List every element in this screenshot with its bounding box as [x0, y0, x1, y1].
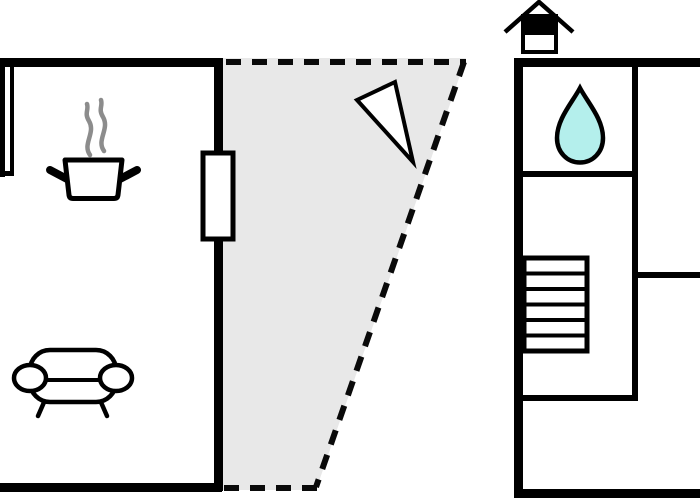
right-unit-interior-wall-vertical	[632, 64, 638, 401]
floor-plan-canvas	[0, 0, 700, 500]
terrace-shading	[222, 58, 466, 490]
left-unit-wall-bottom	[0, 483, 222, 492]
floor-plan-drawing	[0, 0, 700, 500]
pot-body	[65, 160, 122, 199]
right-unit-wall-top	[514, 58, 700, 67]
right-unit-interior-wall-right	[636, 272, 700, 278]
cooking-pot-icon	[50, 100, 137, 199]
sofa-armrest-left	[14, 365, 46, 391]
right-unit-interior-wall-upper	[520, 171, 635, 177]
left-unit-wall-right	[214, 58, 223, 491]
right-unit-wall-bottom	[514, 489, 700, 498]
left-unit-partition-horizontal	[0, 171, 14, 176]
right-unit-interior-wall-lower	[520, 395, 638, 401]
steam-line-right	[101, 100, 105, 151]
sofa-icon	[14, 350, 132, 416]
left-unit-wall-top	[0, 58, 223, 67]
sofa-armrest-right	[100, 365, 132, 391]
terrace-area	[222, 58, 466, 490]
stairs-icon	[524, 258, 587, 351]
door-marker	[203, 153, 233, 239]
left-unit-wall-edge-strip	[0, 58, 5, 177]
left-unit-partition-vertical	[10, 64, 14, 174]
steam-line-left	[87, 104, 91, 155]
house-body-filled-half	[521, 14, 558, 35]
left-unit	[0, 58, 233, 492]
water-drop-icon	[557, 88, 603, 163]
right-unit	[505, 2, 700, 498]
house-chimney-icon	[505, 2, 573, 52]
